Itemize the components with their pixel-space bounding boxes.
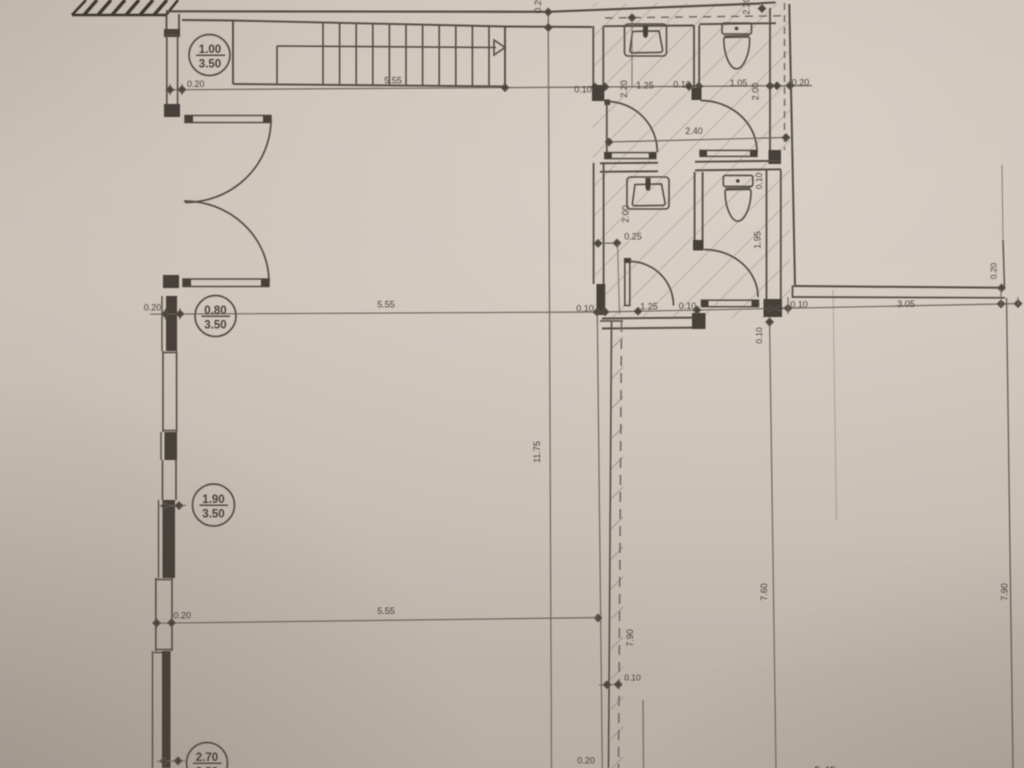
- svg-text:0.10: 0.10: [790, 300, 808, 310]
- svg-text:1.25: 1.25: [636, 81, 654, 91]
- svg-text:0.20: 0.20: [174, 611, 192, 621]
- svg-text:11.75: 11.75: [532, 441, 542, 463]
- svg-text:5.55: 5.55: [377, 606, 395, 616]
- svg-text:0.10: 0.10: [754, 327, 764, 344]
- svg-text:0.80: 0.80: [204, 305, 226, 317]
- svg-text:1.00: 1.00: [199, 44, 221, 56]
- svg-text:0.20: 0.20: [989, 262, 999, 279]
- svg-text:0.10: 0.10: [574, 85, 592, 95]
- svg-text:0.10: 0.10: [754, 172, 764, 189]
- svg-text:2.20: 2.20: [742, 0, 752, 15]
- svg-text:7.60: 7.60: [759, 583, 769, 601]
- svg-text:0.10: 0.10: [673, 80, 691, 90]
- svg-text:3.50: 3.50: [199, 59, 221, 71]
- svg-text:0.10: 0.10: [576, 304, 594, 314]
- svg-text:2.20: 2.20: [619, 80, 629, 98]
- svg-text:0.20: 0.20: [792, 78, 810, 88]
- svg-text:1.95: 1.95: [753, 231, 763, 249]
- svg-text:2.00: 2.00: [621, 205, 631, 223]
- svg-text:1.25: 1.25: [640, 302, 658, 312]
- svg-text:3.50: 3.50: [204, 320, 226, 332]
- svg-text:2.40: 2.40: [685, 126, 703, 136]
- svg-text:5.55: 5.55: [377, 300, 395, 310]
- svg-text:7.90: 7.90: [1000, 583, 1010, 601]
- svg-text:0.20: 0.20: [187, 79, 205, 89]
- svg-text:5.55: 5.55: [384, 75, 402, 85]
- svg-text:0.20: 0.20: [144, 303, 162, 313]
- svg-text:0.20: 0.20: [533, 0, 543, 13]
- svg-text:7.90: 7.90: [625, 629, 635, 647]
- svg-text:0.10: 0.10: [624, 673, 641, 683]
- svg-text:1.05: 1.05: [730, 78, 748, 88]
- svg-text:3.05: 3.05: [897, 299, 915, 309]
- svg-text:0.20: 0.20: [577, 756, 595, 766]
- svg-text:0.10: 0.10: [679, 301, 697, 311]
- svg-text:1.05: 1.05: [763, 300, 781, 310]
- svg-text:1.90: 1.90: [202, 494, 224, 506]
- svg-text:3.50: 3.50: [202, 509, 224, 521]
- svg-text:0.25: 0.25: [624, 232, 642, 242]
- svg-text:2.00: 2.00: [751, 83, 761, 101]
- svg-text:2.70: 2.70: [196, 752, 218, 764]
